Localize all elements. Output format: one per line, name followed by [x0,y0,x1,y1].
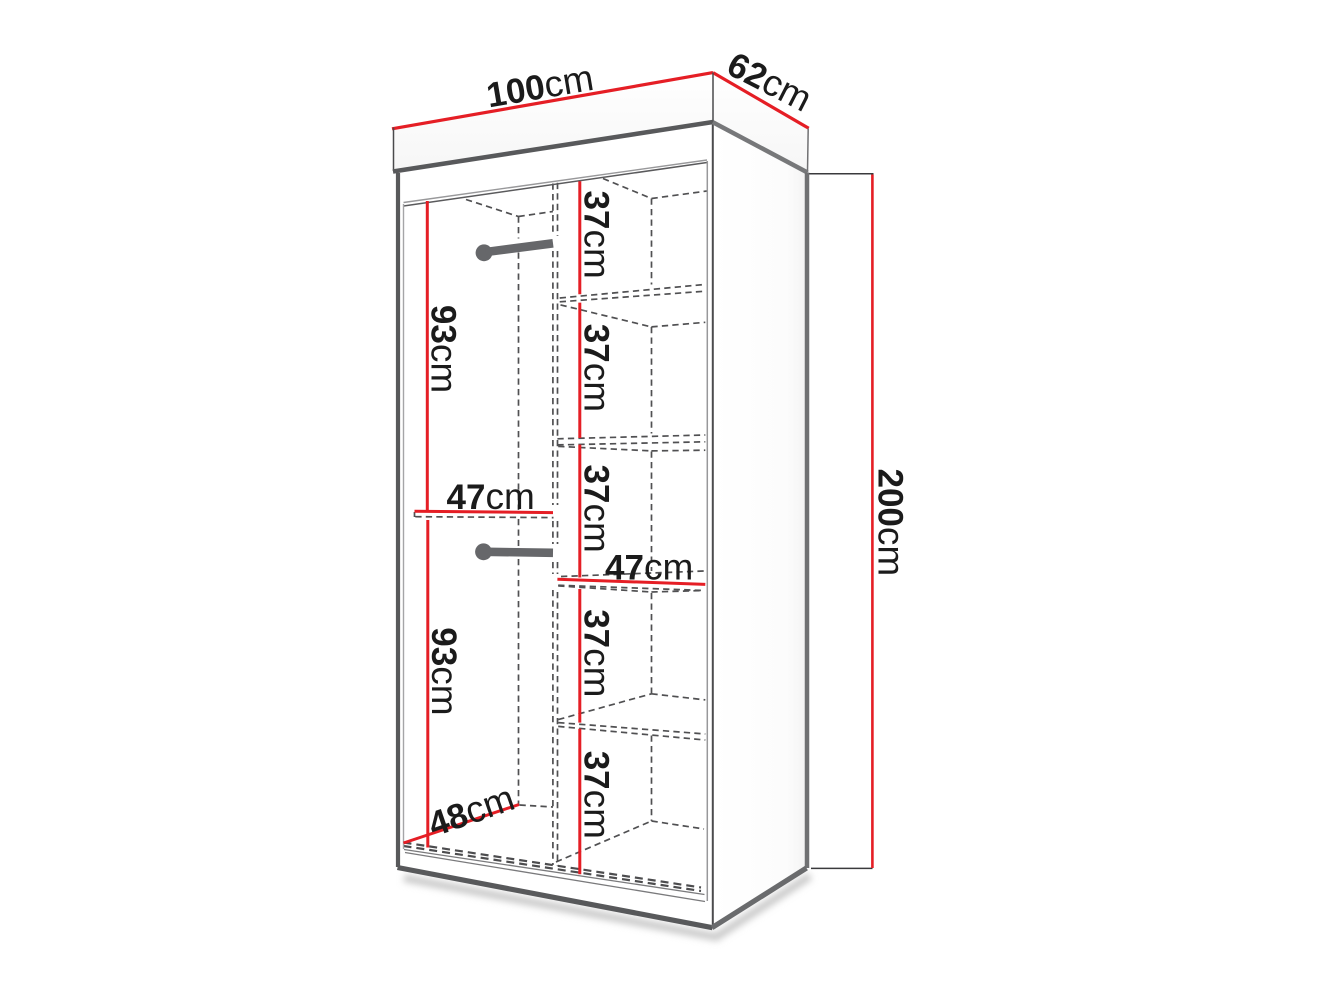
svg-text:47cm: 47cm [605,547,693,588]
svg-text:37cm: 37cm [577,609,618,697]
svg-text:37cm: 37cm [577,324,618,412]
svg-text:37cm: 37cm [577,751,618,839]
svg-text:200cm: 200cm [871,469,912,577]
svg-text:37cm: 37cm [577,465,618,553]
svg-text:93cm: 93cm [423,305,464,393]
svg-text:37cm: 37cm [577,191,618,279]
svg-text:93cm: 93cm [424,627,465,715]
svg-text:47cm: 47cm [447,476,535,517]
